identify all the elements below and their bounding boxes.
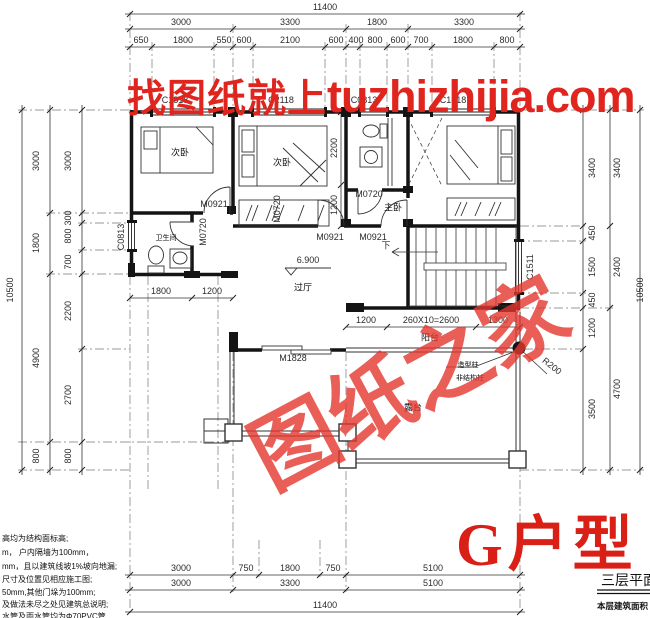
construction-note: m， 户内隔墙为100mm， [2,547,94,558]
dim-label: 800 [499,35,514,45]
dim-label: 2100 [280,35,300,45]
title-underline [597,590,650,594]
dim-label: 600 [390,35,405,45]
watermark-site-url: tuzhizhijia.com [327,71,635,122]
room-label-bathroom: 卫生间 [156,233,177,243]
dim-label: 1200 [356,315,376,325]
dim-label: 1200 [587,318,597,338]
dim-label: 3000 [171,578,191,588]
dim-label: 4700 [612,379,622,399]
dim-label: 1500 [587,257,597,277]
room-label-bedroom-left: 次卧 [171,146,189,159]
dim-label: 11400 [313,600,337,610]
elevation-marker [285,268,331,275]
door-label: M0720 [272,195,282,223]
dim-label: 450 [587,225,597,240]
dim-label: 10500 [5,277,15,302]
dim-label: 1800 [31,233,41,253]
dim-label: 2700 [63,385,73,405]
dim-label: 3400 [587,158,597,178]
dim-label: 1800 [280,563,300,573]
construction-note: mm，且以建筑线坡1%坡向地漏; [2,561,117,572]
door-label: M0921 [200,199,228,209]
dim-label: 700 [63,254,73,269]
dim-label: 2200 [63,301,73,321]
dim-label: 5100 [423,563,443,573]
dim-label: 650 [133,35,148,45]
stair-direction-label: 下 [381,239,390,252]
dim-label: 600 [328,35,343,45]
floor-plan-sheet: 11400 3000 3300 1800 3300 650 1800 550 6… [0,0,650,618]
door-label: M0921 [316,232,344,242]
furniture [141,118,515,273]
dim-label: 550 [216,35,231,45]
dim-label: 800 [63,448,73,463]
dim-label: 400 [348,35,363,45]
construction-note: 尺寸及位置见相应施工图; [2,574,92,585]
dim-label: 700 [413,35,428,45]
dim-label: 3500 [587,399,597,419]
dim-label: 1200 [202,286,222,296]
dim-label: 800 [367,35,382,45]
dim-label: 3000 [31,151,41,171]
construction-note: 及做法未尽之处见建筑总说明; [2,599,108,610]
dim-label: 1800 [173,35,193,45]
dim-label: 600 [236,35,251,45]
dim-label: 450 [587,292,597,307]
dim-label: 300 [63,210,73,225]
construction-note: 50mm,其他门垛为100mm; [2,587,95,598]
dim-label: 800 [63,228,73,243]
dim-label: 3400 [612,158,622,178]
dim-label: 3000 [63,151,73,171]
dim-label: 1200 [329,195,339,215]
dim-label: 1800 [151,286,171,296]
dim-label: 750 [325,563,340,573]
door-label: M1828 [279,353,307,363]
dim-label: 800 [31,448,41,463]
dim-label: 750 [238,563,253,573]
dim-label: 1800 [367,17,387,27]
room-label-hall: 过厅 [294,281,312,294]
unit-type-label: G户型 [456,496,638,583]
dim-label: 3000 [171,563,191,573]
watermark-text-cn: 找图纸就上 [127,78,327,121]
dim-label: 2400 [612,257,622,277]
dim-label: 5100 [423,578,443,588]
dim-label: 1800 [453,35,473,45]
construction-note: 水管及雨水管均为Φ70PVC管 [2,611,106,618]
dim-label: 3300 [280,17,300,27]
dim-label: 11400 [313,2,337,12]
floor-area-note: 本层建筑面积 [597,600,648,612]
dim-label: 3300 [454,17,474,27]
window-label: C0813 [116,224,126,251]
door-label: M0720 [198,218,208,246]
room-label-master-bedroom: 主卧 [384,201,402,214]
dim-label: 2200 [329,138,339,158]
room-label-bedroom-mid: 次卧 [273,156,291,169]
door-label: M0720 [355,189,383,199]
dim-label: 4900 [31,348,41,368]
construction-note: 高均为结构面标高; [2,533,68,544]
elevation-value: 6.900 [297,255,320,265]
dim-label: 10500 [635,277,645,302]
dim-label: 3300 [280,578,300,588]
dim-label: 3000 [171,17,191,27]
watermark-banner: 找图纸就上tuzhizhijia.com [127,68,635,124]
